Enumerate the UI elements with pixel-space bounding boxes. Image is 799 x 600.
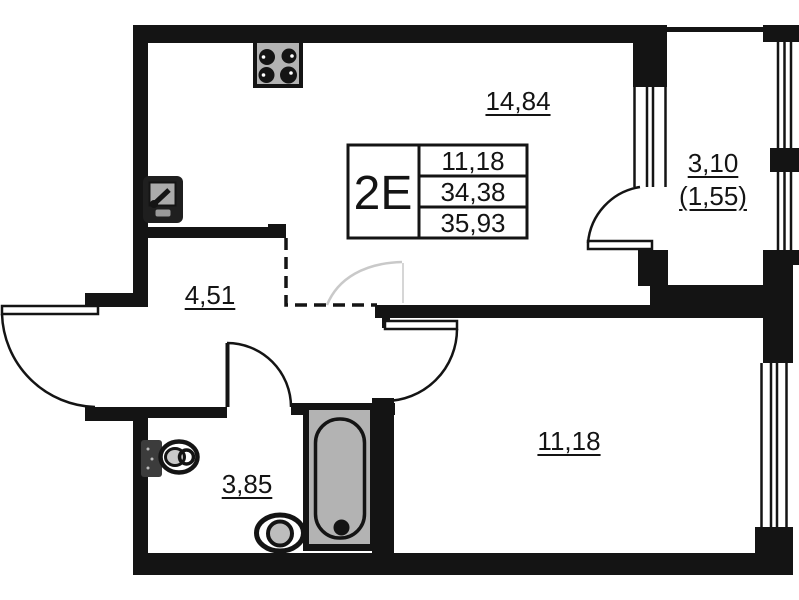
wall-loggia-left-pier bbox=[633, 25, 667, 87]
toilet-icon bbox=[141, 440, 198, 477]
wall-top bbox=[133, 25, 667, 43]
wall-bottom bbox=[133, 553, 793, 575]
entry-door-arc bbox=[2, 314, 95, 407]
entry-door-leaf bbox=[2, 306, 98, 314]
stove-icon bbox=[255, 41, 301, 86]
loggia-partition-window bbox=[635, 87, 666, 187]
wall-bathroom-right bbox=[372, 398, 394, 575]
wall-loggia-top-line bbox=[665, 27, 767, 32]
room-label-loggia: 3,10 bbox=[688, 148, 739, 179]
info-row-total-area: 35,93 bbox=[420, 208, 526, 239]
room-label-bathroom: 3,85 bbox=[222, 469, 273, 500]
wall-loggia-right-pier-mid bbox=[770, 148, 799, 172]
wall-bedroom-right-pier bbox=[763, 265, 793, 363]
wall-kitchen-divider bbox=[148, 227, 270, 238]
floor-plan: 14,84 3,10 (1,55) 4,51 11,18 3,85 2E 11,… bbox=[0, 0, 799, 600]
wall-left-upper bbox=[133, 25, 148, 307]
wall-loggia-door-pier bbox=[638, 250, 668, 286]
kitchen-sink-icon bbox=[143, 176, 183, 223]
bedroom-door-arc bbox=[385, 329, 457, 401]
unit-type-label: 2E bbox=[354, 166, 413, 221]
washbasin-icon bbox=[257, 515, 304, 551]
loggia-door-leaf bbox=[588, 241, 652, 249]
bathtub-icon bbox=[303, 404, 375, 551]
wall-left-lower bbox=[133, 407, 148, 575]
info-row-area: 34,38 bbox=[420, 177, 526, 208]
wall-loggia-right-pier-low bbox=[763, 250, 799, 265]
wall-loggia-topright-pier bbox=[763, 25, 799, 42]
bedroom-door-leaf bbox=[385, 321, 457, 329]
info-row-living-area: 11,18 bbox=[420, 146, 526, 177]
wall-bathroom-top-left bbox=[148, 407, 227, 418]
room-label-loggia-reduced: (1,55) bbox=[679, 181, 747, 212]
wall-bedroom-right-corner bbox=[755, 527, 793, 575]
room-label-bedroom: 11,18 bbox=[537, 426, 600, 457]
loggia-window-upper bbox=[778, 42, 791, 150]
floor-plan-drawing bbox=[0, 0, 799, 600]
loggia-window-lower bbox=[778, 172, 791, 252]
room-label-kitchen-living: 14,84 bbox=[485, 86, 550, 117]
bedroom-window bbox=[762, 363, 787, 527]
faint-opening-arc bbox=[327, 262, 402, 305]
bathroom-door-arc bbox=[227, 343, 291, 407]
wall-kitchen-divider-cap bbox=[268, 224, 286, 238]
room-label-hall: 4,51 bbox=[185, 280, 236, 311]
loggia-door-arc bbox=[588, 187, 640, 243]
